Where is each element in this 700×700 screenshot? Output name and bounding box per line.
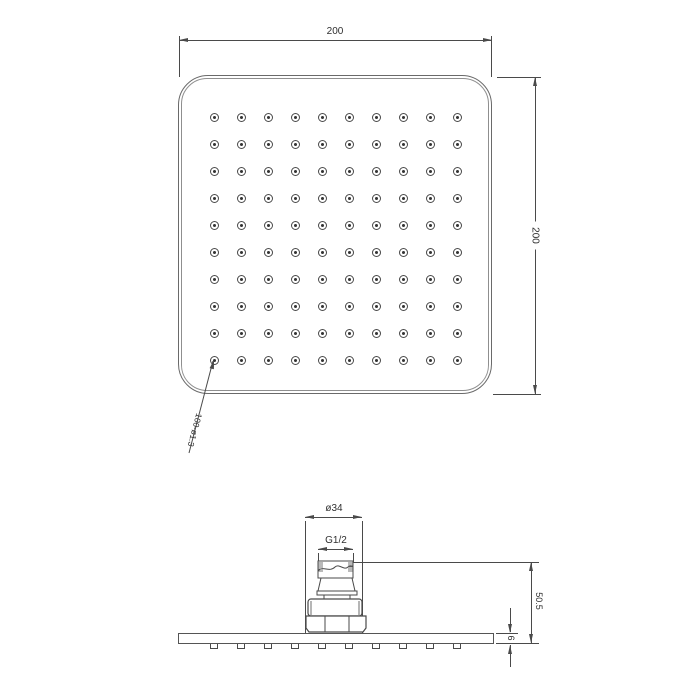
nozzle (318, 194, 327, 203)
dim-arrow-icon (179, 38, 188, 42)
nozzle-tab (264, 644, 272, 649)
nozzle (453, 194, 462, 203)
nozzle-tab (399, 644, 407, 649)
shower-plate-profile (178, 633, 494, 644)
dim-line-overall-height (531, 562, 532, 643)
nozzle-tab (345, 644, 353, 649)
nozzle (399, 194, 408, 203)
nozzle (291, 194, 300, 203)
nozzle (426, 248, 435, 257)
nozzle (237, 113, 246, 122)
nozzle (345, 302, 354, 311)
nozzle (399, 221, 408, 230)
nozzle (237, 221, 246, 230)
nozzle (210, 167, 219, 176)
nozzle (291, 356, 300, 365)
dim-arrow-icon (529, 562, 533, 571)
nozzle (399, 302, 408, 311)
nozzle (264, 302, 273, 311)
nozzle (318, 140, 327, 149)
nozzle (453, 275, 462, 284)
dim-arrow-icon (305, 515, 314, 519)
nozzle (426, 113, 435, 122)
dim-arrow-icon (529, 634, 533, 643)
nozzle (426, 140, 435, 149)
nozzle-grid (210, 113, 470, 373)
dim-label-thread: G1/2 (316, 535, 356, 546)
dim-arrow-icon (353, 515, 362, 519)
nozzle (345, 275, 354, 284)
nozzle (345, 167, 354, 176)
dim-label-width: 200 (315, 26, 355, 37)
nozzle (399, 113, 408, 122)
nozzle (210, 329, 219, 338)
nozzle (237, 302, 246, 311)
nozzle (372, 248, 381, 257)
nozzle (372, 113, 381, 122)
nozzle (345, 140, 354, 149)
nozzle (372, 329, 381, 338)
nozzle (399, 167, 408, 176)
dim-extension-line (353, 562, 539, 563)
nozzle (237, 329, 246, 338)
nozzle (453, 221, 462, 230)
nozzle (237, 194, 246, 203)
nozzle (345, 329, 354, 338)
dim-label-thickness: 6 (506, 632, 516, 644)
hex-nut (306, 616, 366, 632)
nozzle (426, 302, 435, 311)
nozzle (291, 275, 300, 284)
dim-extension-line (493, 394, 541, 395)
nozzle (372, 356, 381, 365)
nozzle (318, 113, 327, 122)
nozzle-tab (453, 644, 461, 649)
nozzle (291, 329, 300, 338)
nozzle (453, 248, 462, 257)
nozzle (453, 302, 462, 311)
connector-assembly (300, 555, 380, 635)
nozzle (237, 167, 246, 176)
nozzle (318, 329, 327, 338)
nozzle (318, 167, 327, 176)
nozzle (399, 140, 408, 149)
dim-extension-line (496, 643, 539, 644)
nozzle (264, 140, 273, 149)
nozzle (372, 275, 381, 284)
nozzle (453, 329, 462, 338)
nozzle (264, 167, 273, 176)
nozzle (453, 113, 462, 122)
nozzle (318, 248, 327, 257)
nozzle (426, 329, 435, 338)
dim-label-overall-height: 50.5 (534, 587, 544, 615)
nozzle (291, 140, 300, 149)
nozzle (291, 167, 300, 176)
nozzle (264, 194, 273, 203)
nozzle (291, 248, 300, 257)
nozzle (345, 356, 354, 365)
dim-arrow-icon (508, 645, 512, 654)
dim-extension-line (179, 36, 180, 77)
nozzle-tab-row (210, 644, 470, 650)
nozzle-tab (372, 644, 380, 649)
nozzle (264, 248, 273, 257)
nozzle (264, 275, 273, 284)
nozzle (372, 302, 381, 311)
nozzle (318, 302, 327, 311)
nozzle (426, 167, 435, 176)
nozzle (318, 221, 327, 230)
nozzle (210, 140, 219, 149)
nozzle (210, 248, 219, 257)
nozzle (345, 113, 354, 122)
nozzle (318, 356, 327, 365)
nozzle (264, 356, 273, 365)
nozzle (372, 140, 381, 149)
nozzle (426, 275, 435, 284)
nozzle (426, 194, 435, 203)
nozzle (210, 194, 219, 203)
nozzle (372, 167, 381, 176)
dim-label-height: 200 (530, 222, 541, 250)
nozzle (453, 167, 462, 176)
dim-arrow-icon (318, 547, 327, 551)
nozzle (237, 248, 246, 257)
dim-arrow-icon (533, 385, 537, 394)
dim-label-diameter: ø34 (313, 503, 355, 514)
nozzle (291, 302, 300, 311)
nozzle (318, 275, 327, 284)
nozzle (291, 113, 300, 122)
nozzle (264, 113, 273, 122)
nozzle (426, 221, 435, 230)
dim-line-width (179, 40, 492, 41)
nozzle (264, 221, 273, 230)
dim-extension-line (491, 36, 492, 77)
nozzle (453, 140, 462, 149)
nozzle (291, 221, 300, 230)
dim-arrow-icon (483, 38, 492, 42)
nozzle-tab (318, 644, 326, 649)
nozzle (345, 221, 354, 230)
nozzle-tab (210, 644, 218, 649)
nozzle (453, 356, 462, 365)
nozzle (426, 356, 435, 365)
nozzle (345, 194, 354, 203)
nozzle (399, 356, 408, 365)
nozzle (399, 248, 408, 257)
nozzle (210, 302, 219, 311)
nozzle (210, 113, 219, 122)
nozzle (210, 275, 219, 284)
nozzle (372, 194, 381, 203)
nozzle (372, 221, 381, 230)
nozzle (210, 221, 219, 230)
nozzle (264, 329, 273, 338)
nozzle-tab (291, 644, 299, 649)
nozzle-tab (237, 644, 245, 649)
nozzle (237, 275, 246, 284)
nozzle (345, 248, 354, 257)
technical-drawing: 200 200 100-ø1.3 ø34 G1/2 (0, 0, 700, 700)
dim-arrow-icon (344, 547, 353, 551)
nozzle (237, 140, 246, 149)
dim-arrow-icon (533, 77, 537, 86)
nozzle-tab (426, 644, 434, 649)
nozzle (399, 329, 408, 338)
nozzle (399, 275, 408, 284)
